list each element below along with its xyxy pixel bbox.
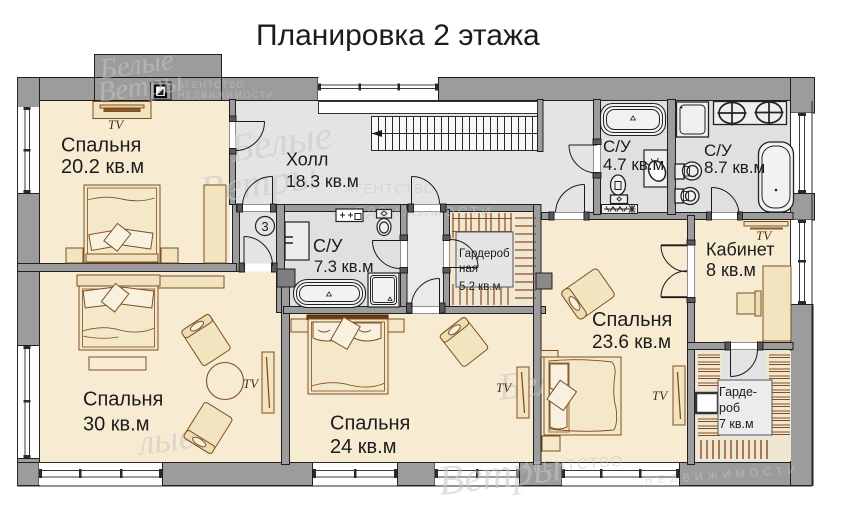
svg-text:Гардероб: Гардероб (459, 248, 510, 260)
svg-text:НЕДВИЖИМОСТИ: НЕДВИЖИМОСТИ (178, 90, 275, 100)
svg-text:8 кв.м: 8 кв.м (706, 260, 756, 280)
svg-text:Гарде-: Гарде- (719, 385, 757, 399)
svg-text:Спальня: Спальня (330, 413, 410, 435)
svg-text:18.3 кв.м: 18.3 кв.м (286, 171, 359, 191)
svg-text:30 кв.м: 30 кв.м (83, 414, 149, 436)
svg-text:20.2 кв.м: 20.2 кв.м (61, 156, 144, 178)
svg-text:7 кв.м: 7 кв.м (719, 417, 754, 431)
svg-text:3: 3 (261, 219, 268, 234)
svg-text:TV: TV (243, 376, 260, 391)
svg-text:ная: ная (459, 263, 478, 275)
svg-text:TV: TV (496, 380, 513, 395)
svg-text:Кабинет: Кабинет (706, 240, 774, 260)
svg-text:8.7 кв.м: 8.7 кв.м (704, 158, 765, 177)
svg-text:TV: TV (652, 388, 669, 403)
svg-text:АГЕНТСТВО: АГЕНТСТВО (178, 80, 245, 90)
svg-text:4.7 кв.м: 4.7 кв.м (603, 155, 664, 174)
svg-text:Спальня: Спальня (83, 389, 163, 411)
svg-text:роб: роб (719, 401, 740, 415)
svg-text:24 кв.м: 24 кв.м (330, 436, 396, 458)
svg-text:5.2 кв.м: 5.2 кв.м (459, 281, 501, 293)
svg-text:Планировка 2 этажа: Планировка 2 этажа (256, 19, 540, 52)
svg-text:С/У: С/У (313, 236, 343, 256)
svg-text:23.6 кв.м: 23.6 кв.м (592, 332, 671, 353)
svg-text:TV: TV (108, 117, 125, 132)
svg-text:Спальня: Спальня (592, 309, 672, 331)
svg-text:Спальня: Спальня (61, 135, 141, 157)
svg-text:7.3 кв.м: 7.3 кв.м (314, 258, 373, 276)
svg-text:С/У: С/У (603, 137, 631, 156)
svg-text:Холл: Холл (286, 150, 328, 170)
